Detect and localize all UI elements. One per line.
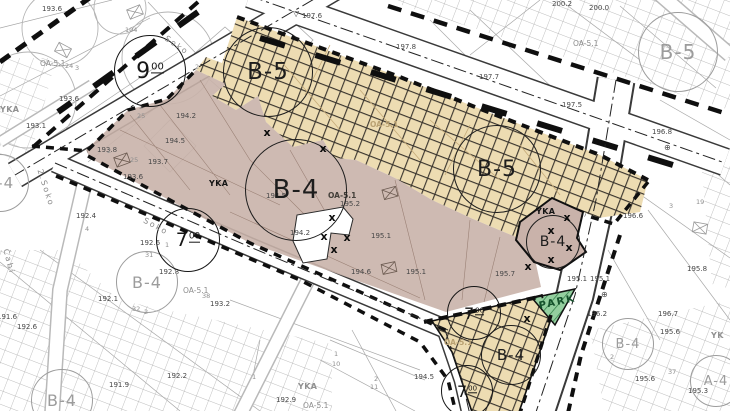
zone-code-label: OA-5.1 (573, 40, 598, 48)
zone-circle-b-4: B-4 (245, 139, 347, 241)
survey-symbol: ▽ (293, 10, 299, 18)
zone-code-label: OA-5.1 (40, 60, 65, 68)
elevation-label: 195.1 (406, 269, 426, 276)
elevation-label: 193.7 (148, 159, 168, 166)
x-mark: x (547, 254, 554, 265)
parcel-number: 37 (668, 369, 676, 376)
survey-symbol: ⊕ (664, 144, 671, 152)
parcel-number: 24 (65, 63, 73, 70)
width-value: 9 (136, 59, 150, 84)
elevation-label: 195.6 (635, 376, 655, 383)
width-decimals: 00 (475, 306, 484, 315)
x-mark: x (563, 212, 570, 223)
zone-code-label: YKA (209, 180, 228, 188)
elevation-label: 196.8 (652, 129, 672, 136)
x-mark: x (565, 242, 572, 253)
elevation-label: 192.4 (76, 213, 96, 220)
width-decimals: 00 (189, 231, 200, 242)
elevation-label: 197.7 (479, 74, 499, 81)
elevation-label: 196.6 (623, 213, 643, 220)
elevation-label: 196.7 (658, 311, 678, 318)
elevation-label: 197.8 (396, 44, 416, 51)
street-width-circle: 700 (156, 208, 220, 272)
label-layer: 197.6197.8197.7197.5196.8200.2200.0194.2… (0, 0, 730, 411)
zone-circle-b-4: B-4 (31, 369, 93, 411)
elevation-label: 195.7 (495, 271, 515, 278)
elevation-label: 200.2 (552, 1, 572, 8)
zone-circle-b-5: B-5 (223, 27, 313, 117)
elevation-label: 193.6 (123, 174, 143, 181)
street-name-label: 2.Soko (35, 168, 56, 208)
elevation-label: 194.2 (176, 113, 196, 120)
elevation-label: 193.6 (42, 6, 62, 13)
x-mark: x (524, 261, 531, 272)
x-mark: x (547, 225, 554, 236)
zone-code-label: OA-5.1 (370, 121, 398, 129)
elevation-label: 195.8 (687, 266, 707, 273)
parcel-number: 3 (75, 65, 79, 72)
elevation-label: 196.2 (587, 311, 607, 318)
elevation-label: 194.5 (414, 374, 434, 381)
zone-code-label: YKA (298, 383, 317, 391)
zone-code-label: OA-5.1 (183, 287, 208, 295)
elevation-label: 200.0 (589, 5, 609, 12)
elevation-label: 195.6 (660, 329, 680, 336)
elevation-label: 191.6 (0, 314, 17, 321)
elevation-label: 194.5 (165, 138, 185, 145)
x-mark: x (320, 231, 327, 242)
elevation-label: 195.1 (567, 276, 587, 283)
parcel-number: 2 (374, 376, 378, 383)
elevation-label: 192.6 (17, 324, 37, 331)
zone-circle-b-4: B-4 (0, 154, 29, 212)
elevation-label: 197.5 (562, 102, 582, 109)
x-mark: x (523, 313, 530, 324)
parcel-number: 1 (334, 351, 338, 358)
width-decimals: 00 (468, 384, 477, 393)
parcel-number: 25 (130, 157, 138, 164)
elevation-label: 192.1 (98, 296, 118, 303)
elevation-label: 193.1 (26, 123, 46, 130)
elevation-label: 197.6 (302, 13, 322, 20)
zone-circle-b-5: B-5 (638, 12, 718, 92)
zoning-map-screenshot: 197.6197.8197.7197.5196.8200.2200.0194.2… (0, 0, 730, 411)
parcel-number: 10 (332, 361, 340, 368)
street-width-circle: 700 (441, 365, 493, 411)
elevation-label: 192.2 (167, 373, 187, 380)
width-value: 7 (464, 304, 474, 323)
zone-code-label: YK (711, 332, 724, 340)
zone-code-label: OA-5.1 (444, 339, 472, 347)
x-mark: x (343, 232, 350, 243)
parcel-number: 25 (137, 113, 145, 120)
x-mark: x (319, 143, 326, 154)
x-mark: x (330, 244, 337, 255)
survey-symbol: ⊕ (601, 291, 608, 299)
zone-circle-b-5: B-5 (453, 125, 541, 213)
elevation-label: 193.6 (59, 96, 79, 103)
width-value: 7 (176, 229, 188, 251)
elevation-label: 195.1 (590, 276, 610, 283)
elevation-label: 194.6 (351, 269, 371, 276)
zone-circle-b-4: B-4 (602, 318, 654, 370)
parcel-number: 19 (696, 199, 704, 206)
parcel-number: 2 (107, 148, 111, 155)
elevation-label: 195.1 (371, 233, 391, 240)
elevation-label: 193.2 (210, 301, 230, 308)
park-label: PARK (538, 293, 577, 312)
street-name-label: Čabi (1, 248, 16, 275)
elevation-label: 192.9 (276, 397, 296, 404)
x-mark: x (328, 212, 335, 223)
parcel-number: 1 (252, 374, 256, 381)
x-mark: x (263, 127, 270, 138)
zone-code-label: OA-5.1 (303, 402, 328, 410)
parcel-number: 2 (195, 64, 199, 71)
street-width-circle: 700 (447, 286, 501, 340)
parcel-number: 11 (370, 384, 378, 391)
parcel-number: 4 (85, 226, 89, 233)
elevation-label: 191.9 (109, 382, 129, 389)
zone-code-label: YKA (0, 106, 19, 114)
width-value: 7 (457, 382, 467, 401)
parcel-number: 3 (669, 203, 673, 210)
width-decimals: 00 (151, 61, 164, 73)
parcel-number: 104 (125, 27, 137, 34)
zone-circle-a-4: A-4 (690, 355, 730, 407)
